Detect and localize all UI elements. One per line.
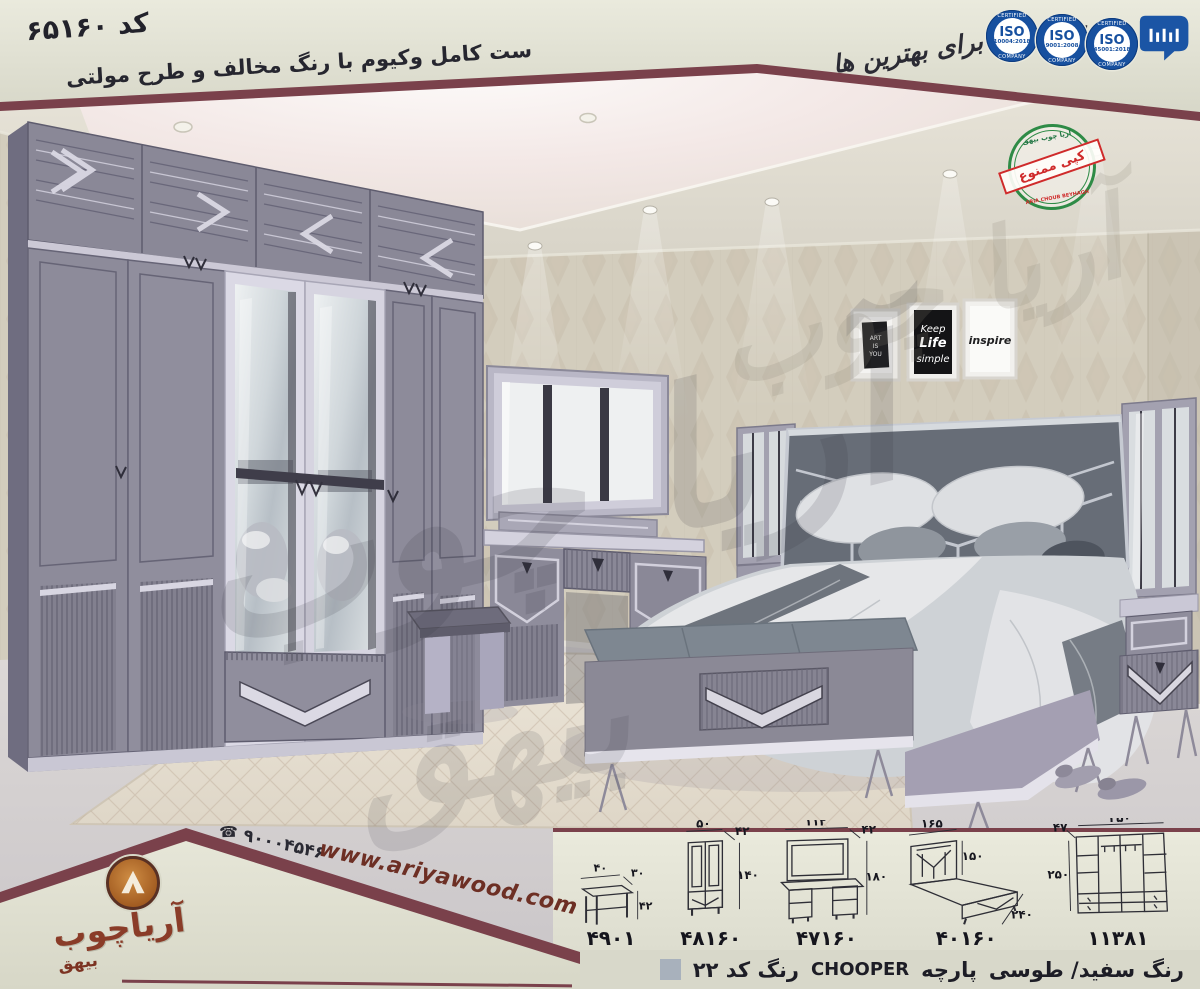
- phone-icon: ☎: [219, 823, 238, 842]
- dim-height: ۱۸۰: [865, 870, 887, 884]
- item-wardrobe: ۲۵۰ ۴۷ ۲۵۰ ۱۱۳۸۱: [1044, 818, 1192, 950]
- dim-depth: ۴۷: [1053, 820, 1068, 834]
- ceiling-light: [174, 122, 192, 132]
- company-logo: [106, 856, 160, 910]
- iso-badges: CERTIFIED ISO 10004:2018 COMPANY CERTIFI…: [986, 10, 1136, 70]
- badge-iso-label: ISO: [999, 27, 1024, 39]
- dim-length: ۲۴۰: [1011, 908, 1033, 922]
- color-names: رنگ سفید/ طوسی: [989, 958, 1184, 982]
- dim-depth: ۳۰: [631, 867, 645, 880]
- footer-banner: آریاچوب بیهق ☎ ۹۰۰۰۴۵۴۶ www.ariyawood.co…: [0, 820, 580, 989]
- iso-badge: CERTIFIED ISO 9001:2008 COMPANY: [1036, 14, 1088, 66]
- item-code: ۴۹۰۱: [587, 926, 636, 950]
- badge-bottom-label: COMPANY: [1098, 62, 1125, 68]
- dim-depth: ۴۲: [735, 824, 750, 838]
- item-code: ۱۱۳۸۱: [1087, 926, 1148, 950]
- badge-standard: 45001:2018: [1094, 47, 1131, 53]
- badge-top-label: CERTIFIED: [1097, 21, 1126, 27]
- dim-width: ۴۰: [594, 861, 608, 874]
- badge-standard: 10004:2018: [994, 39, 1031, 45]
- dimension-strip: ۴۰ ۳۰ ۴۲ ۴۹۰۱ ۵۰ ۴۲ ۱۴۰ ۴۸۱۶۰: [553, 828, 1200, 950]
- logo-a-icon: [116, 866, 150, 900]
- item-code: ۴۰۱۶۰: [936, 926, 997, 950]
- badge-iso-label: ISO: [1099, 35, 1124, 47]
- dim-width: ۱۱۲: [804, 820, 826, 829]
- item-code: ۴۸۱۶۰: [680, 926, 741, 950]
- dim-height: ۴۲: [639, 900, 653, 913]
- iran-standard-icon: [1138, 12, 1194, 64]
- color-code-label: رنگ کد ۲۲: [693, 958, 799, 982]
- iso-badge: CERTIFIED ISO 10004:2018 COMPANY: [986, 10, 1038, 62]
- dim-width: ۲۵۰: [1109, 818, 1131, 825]
- dim-depth: ۴۲: [861, 822, 876, 836]
- item-bed: ۱۶۵ ۱۵۰ ۲۴۰ ۴۰۱۶۰: [892, 818, 1040, 950]
- fabric-name: CHOOPER: [811, 959, 909, 980]
- color-note: رنگ سفید/ طوسی پارچه CHOOPER رنگ کد ۲۲: [553, 950, 1200, 989]
- item-mirror-cabinet: ۵۰ ۴۲ ۱۴۰ ۴۸۱۶۰: [661, 820, 761, 950]
- badge-standard: 9001:2008: [1046, 43, 1079, 49]
- right-mirror-panel: [1122, 398, 1196, 598]
- ceiling-light: [580, 114, 596, 123]
- dim-height: ۱۵۰: [962, 849, 984, 863]
- dim-height: ۱۴۰: [737, 868, 759, 882]
- iso-badge: CERTIFIED ISO 45001:2018 COMPANY: [1086, 18, 1138, 70]
- copy-forbidden-stamp: آریا چوب بیهق کپی ممنوع ARIA CHOUB BEYHA…: [1001, 117, 1103, 217]
- badge-top-label: CERTIFIED: [997, 13, 1026, 19]
- poster-canvas: ART IS YOU Keep Life simple inspire: [0, 0, 1200, 989]
- badge-bottom-label: COMPANY: [1048, 58, 1075, 64]
- badge-bottom-label: COMPANY: [998, 54, 1025, 60]
- dim-height: ۲۵۰: [1047, 868, 1069, 882]
- color-swatch: [660, 959, 681, 980]
- item-dressing-table: ۱۱۲ ۴۲ ۱۸۰ ۴۷۱۶۰: [765, 820, 889, 950]
- fabric-label: پارچه: [921, 958, 977, 982]
- item-code: ۴۷۱۶۰: [796, 926, 857, 950]
- dim-width: ۱۶۵: [921, 818, 943, 830]
- badge-iso-label: ISO: [1049, 31, 1074, 43]
- badge-top-label: CERTIFIED: [1047, 17, 1076, 23]
- dim-width: ۵۰: [696, 820, 710, 831]
